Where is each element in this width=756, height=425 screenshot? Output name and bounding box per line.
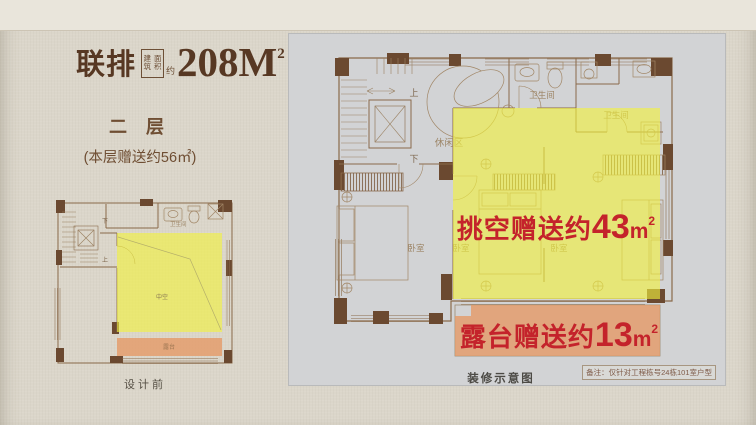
floor-label: 二 层 [0,113,280,139]
after-plan-caption: 装修示意图 [441,370,561,386]
area-prefix-box: 建筑 面积 [141,49,164,78]
area-approx-label: 约 [166,64,175,77]
bathroom-top-label: 卫生间 [529,90,555,100]
area-prefix-col1: 建筑 [143,55,152,71]
disclaimer-note: 备注：仅针对工程栋号24栋101室户型 [582,365,716,380]
before-up-label: 上 [102,256,108,264]
floor-bonus-note: (本层赠送约56㎡) [0,146,280,167]
house-type-label: 联排 [76,51,136,80]
terrace-gift-callout: 露台赠送约13m2 [449,310,669,361]
cabinet-hatched [341,173,403,191]
left-column: 联排 建筑 面积 约 208M2 二 层 (本层赠送约56㎡) [0,0,288,425]
after-plan-panel: 上 下 休闲区 卫生间 卫生间 卧室 卧室 卧室 挑空赠送约43m2 露台赠送约… [288,33,726,386]
up-label: 上 [409,88,418,98]
bedroom-left-label: 卧室 [407,243,425,253]
down-label: 下 [409,154,418,164]
before-down-label: 下 [102,218,108,225]
before-bath-fixtures [164,204,223,223]
before-terrace-label: 露台 [163,343,175,351]
headline: 联排 建筑 面积 约 208M2 [76,46,285,80]
bed-left [337,206,408,280]
staircase [341,58,412,164]
before-bathroom-label: 卫生间 [170,220,187,228]
before-plan-caption: 设计前 [40,376,250,392]
before-plan-drawing: 下 上 卫生间 中空 露台 [40,192,250,370]
before-plan: 下 上 卫生间 中空 露台 [40,192,250,402]
before-void-highlight [117,233,222,332]
before-void-label: 中空 [156,293,168,301]
area-prefix-col2: 面积 [153,55,162,71]
before-stairs [62,212,98,262]
void-gift-callout: 挑空赠送约43m2 [446,202,666,253]
area-exponent: 2 [277,46,285,62]
area-value: 208M2 [177,46,285,80]
floorplan-poster: 联排 建筑 面积 约 208M2 二 层 (本层赠送约56㎡) [0,0,756,425]
